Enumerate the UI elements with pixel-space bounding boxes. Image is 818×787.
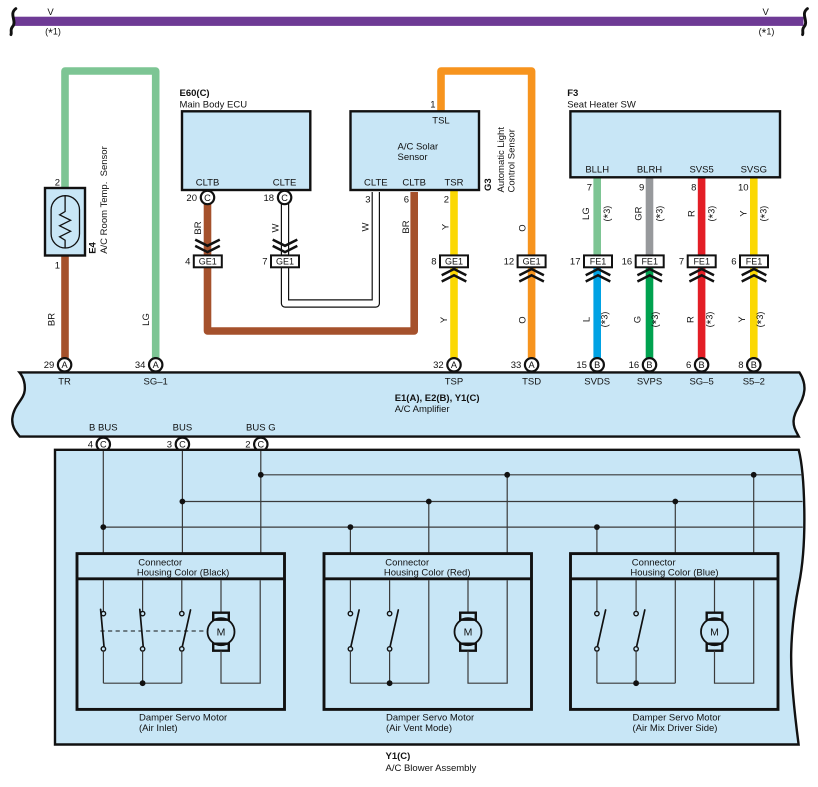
svg-text:20: 20: [186, 193, 197, 204]
svg-text:32: 32: [433, 360, 444, 371]
svg-text:B: B: [594, 360, 600, 370]
svg-text:12: 12: [504, 257, 515, 268]
svg-text:C: C: [257, 440, 264, 450]
svg-text:2: 2: [55, 177, 60, 188]
svg-text:SG–5: SG–5: [689, 376, 713, 387]
svg-text:Sensor: Sensor: [398, 152, 428, 163]
svg-text:Seat Heater SW: Seat Heater SW: [567, 100, 636, 111]
svg-text:Y: Y: [737, 316, 748, 323]
svg-text:R: R: [685, 316, 696, 323]
svg-text:15: 15: [576, 360, 587, 371]
svg-text:Y: Y: [440, 223, 451, 230]
svg-text:A: A: [451, 360, 458, 370]
svg-text:2: 2: [444, 195, 449, 206]
svg-text:C: C: [100, 440, 107, 450]
svg-text:33: 33: [511, 360, 522, 371]
svg-text:BR: BR: [193, 221, 204, 234]
svg-text:Automatic Light: Automatic Light: [496, 127, 507, 193]
svg-text:Y: Y: [439, 316, 450, 323]
svg-text:29: 29: [44, 360, 55, 371]
svg-text:4: 4: [185, 257, 190, 268]
svg-text:34: 34: [135, 360, 146, 371]
svg-text:Control Sensor: Control Sensor: [506, 129, 517, 192]
svg-text:C: C: [204, 193, 211, 203]
svg-text:TR: TR: [58, 376, 71, 387]
svg-text:(Air Inlet): (Air Inlet): [139, 723, 178, 734]
svg-text:C: C: [281, 193, 288, 203]
svg-text:SVDS: SVDS: [584, 376, 610, 387]
svg-text:V: V: [763, 7, 770, 18]
svg-text:8: 8: [431, 257, 436, 268]
svg-text:Damper Servo Motor: Damper Servo Motor: [139, 713, 227, 724]
svg-text:B: B: [699, 360, 705, 370]
svg-text:16: 16: [622, 257, 633, 268]
svg-text:TSL: TSL: [432, 116, 449, 127]
svg-text:CLTB: CLTB: [402, 177, 426, 188]
svg-text:SVPS: SVPS: [637, 376, 662, 387]
svg-text:G3: G3: [483, 178, 494, 191]
svg-text:Main Body ECU: Main Body ECU: [180, 100, 248, 111]
svg-text:E4: E4: [87, 241, 98, 253]
svg-text:Damper Servo Motor: Damper Servo Motor: [386, 713, 474, 724]
svg-text:3: 3: [365, 195, 370, 206]
svg-text:BR: BR: [401, 220, 412, 233]
svg-text:A: A: [62, 360, 69, 370]
svg-text:FE1: FE1: [746, 257, 763, 267]
svg-text:S5–2: S5–2: [743, 376, 765, 387]
svg-text:LG: LG: [581, 207, 592, 220]
svg-text:1: 1: [55, 260, 60, 271]
svg-text:7: 7: [262, 257, 267, 268]
svg-text:TSD: TSD: [522, 376, 541, 387]
svg-text:M: M: [710, 626, 719, 638]
svg-text:TSP: TSP: [445, 376, 463, 387]
svg-text:CLTB: CLTB: [196, 177, 220, 188]
svg-text:W: W: [271, 223, 282, 232]
svg-text:Damper Servo Motor: Damper Servo Motor: [633, 713, 721, 724]
svg-text:A/C Amplifier: A/C Amplifier: [395, 404, 450, 415]
svg-text:B: B: [751, 360, 757, 370]
svg-text:A: A: [529, 360, 536, 370]
svg-text:M: M: [464, 626, 473, 638]
svg-text:BUS: BUS: [173, 423, 193, 434]
svg-text:R: R: [686, 210, 697, 217]
svg-text:C: C: [179, 440, 186, 450]
svg-text:FE1: FE1: [693, 257, 710, 267]
svg-text:B: B: [646, 360, 652, 370]
svg-text:V: V: [47, 7, 54, 18]
svg-text:E1(A), E2(B), Y1(C): E1(A), E2(B), Y1(C): [395, 393, 480, 404]
svg-text:17: 17: [570, 257, 581, 268]
svg-text:1: 1: [430, 99, 435, 110]
svg-text:A: A: [153, 360, 160, 370]
svg-text:LG: LG: [141, 313, 152, 326]
svg-text:Y: Y: [738, 210, 749, 217]
svg-text:GE1: GE1: [523, 257, 541, 267]
svg-text:TSR: TSR: [445, 177, 464, 188]
svg-text:10: 10: [738, 183, 749, 194]
svg-text:(Air Vent Mode): (Air Vent Mode): [386, 723, 452, 734]
svg-text:BLLH: BLLH: [585, 164, 609, 175]
svg-text:SG–1: SG–1: [144, 376, 168, 387]
svg-text:(Air Mix Driver Side): (Air Mix Driver Side): [633, 723, 718, 734]
svg-text:GE1: GE1: [445, 257, 463, 267]
svg-text:7: 7: [679, 257, 684, 268]
svg-text:GE1: GE1: [199, 257, 217, 267]
svg-text:A/C Blower Assembly: A/C Blower Assembly: [386, 763, 477, 774]
svg-text:6: 6: [404, 195, 409, 206]
svg-text:8: 8: [738, 360, 743, 371]
svg-text:B BUS: B BUS: [89, 423, 118, 434]
svg-text:A/C Room Temp. Sensor: A/C Room Temp. Sensor: [99, 146, 110, 254]
svg-text:GR: GR: [633, 206, 644, 220]
svg-text:FE1: FE1: [641, 257, 658, 267]
svg-text:8: 8: [691, 183, 696, 194]
svg-text:Y1(C): Y1(C): [386, 751, 411, 762]
svg-text:16: 16: [629, 360, 640, 371]
svg-text:Housing Color (Black): Housing Color (Black): [137, 568, 229, 579]
svg-text:L: L: [582, 317, 593, 322]
svg-text:SVS5: SVS5: [689, 164, 713, 175]
svg-text:GE1: GE1: [276, 257, 294, 267]
svg-text:CLTE: CLTE: [273, 177, 297, 188]
svg-text:7: 7: [587, 183, 592, 194]
svg-text:M: M: [217, 626, 226, 638]
svg-text:BLRH: BLRH: [637, 164, 662, 175]
svg-text:FE1: FE1: [590, 257, 607, 267]
svg-text:BUS G: BUS G: [246, 423, 276, 434]
svg-text:F3: F3: [567, 88, 578, 99]
svg-text:CLTE: CLTE: [364, 177, 388, 188]
svg-text:SVSG: SVSG: [741, 164, 767, 175]
svg-text:G: G: [632, 316, 643, 323]
svg-text:6: 6: [686, 360, 691, 371]
svg-text:A/C Solar: A/C Solar: [398, 142, 439, 153]
svg-text:BR: BR: [47, 313, 58, 326]
svg-text:Housing Color (Blue): Housing Color (Blue): [630, 568, 718, 579]
svg-text:Housing Color (Red): Housing Color (Red): [384, 568, 471, 579]
svg-text:O: O: [517, 224, 528, 231]
svg-text:6: 6: [731, 257, 736, 268]
svg-text:O: O: [517, 316, 528, 323]
svg-text:9: 9: [639, 183, 644, 194]
svg-text:W: W: [360, 222, 371, 231]
svg-text:E60(C): E60(C): [180, 88, 210, 99]
svg-text:18: 18: [264, 193, 275, 204]
